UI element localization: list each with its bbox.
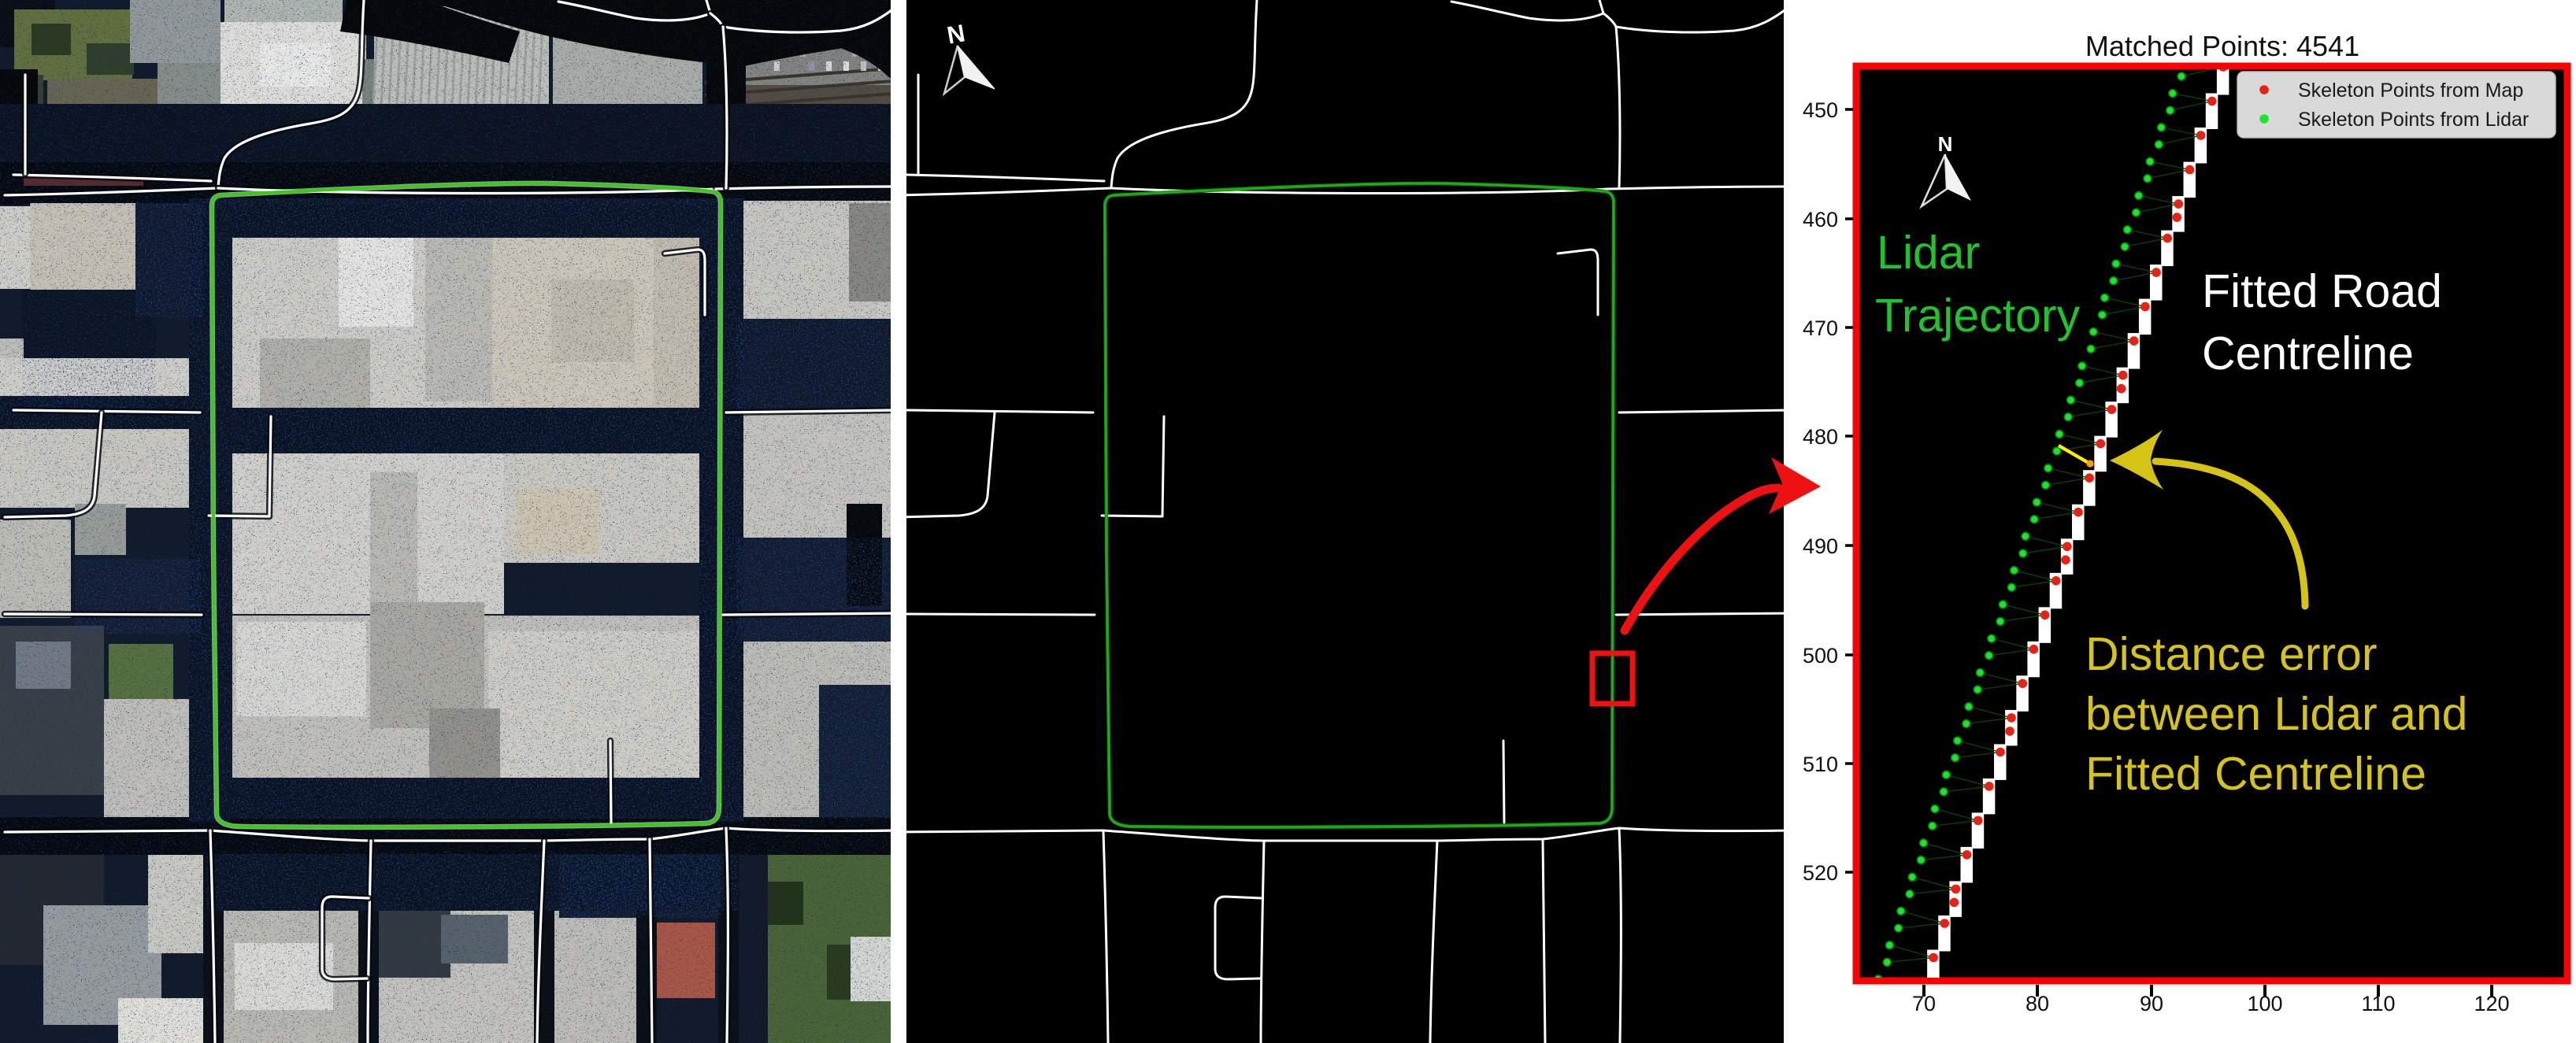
svg-text:100: 100 bbox=[2247, 992, 2282, 1015]
svg-text:Matched Points: 4541: Matched Points: 4541 bbox=[2085, 30, 2359, 62]
svg-text:90: 90 bbox=[2140, 992, 2163, 1015]
svg-text:500: 500 bbox=[1803, 644, 1838, 668]
svg-text:Distance error: Distance error bbox=[2085, 628, 2378, 680]
svg-text:Centreline: Centreline bbox=[2202, 327, 2414, 379]
svg-text:between Lidar and: between Lidar and bbox=[2085, 688, 2467, 740]
svg-text:80: 80 bbox=[2026, 992, 2049, 1015]
svg-text:120: 120 bbox=[2474, 992, 2509, 1015]
svg-text:510: 510 bbox=[1803, 753, 1838, 776]
svg-text:480: 480 bbox=[1803, 425, 1838, 449]
svg-text:Skeleton Points from Map: Skeleton Points from Map bbox=[2298, 80, 2523, 102]
svg-text:Skeleton Points from Lidar: Skeleton Points from Lidar bbox=[2298, 109, 2529, 131]
svg-text:Fitted Centreline: Fitted Centreline bbox=[2085, 748, 2426, 800]
svg-text:70: 70 bbox=[1912, 992, 1936, 1015]
svg-text:Trajectory: Trajectory bbox=[1875, 290, 2081, 342]
svg-text:520: 520 bbox=[1803, 861, 1838, 885]
svg-text:460: 460 bbox=[1803, 208, 1838, 231]
svg-text:470: 470 bbox=[1803, 316, 1838, 340]
svg-text:Fitted Road: Fitted Road bbox=[2202, 265, 2442, 317]
svg-text:110: 110 bbox=[2361, 992, 2395, 1015]
svg-text:490: 490 bbox=[1803, 534, 1838, 558]
svg-text:Lidar: Lidar bbox=[1877, 227, 1980, 279]
svg-text:450: 450 bbox=[1803, 98, 1838, 122]
svg-text:N: N bbox=[1938, 132, 1953, 156]
